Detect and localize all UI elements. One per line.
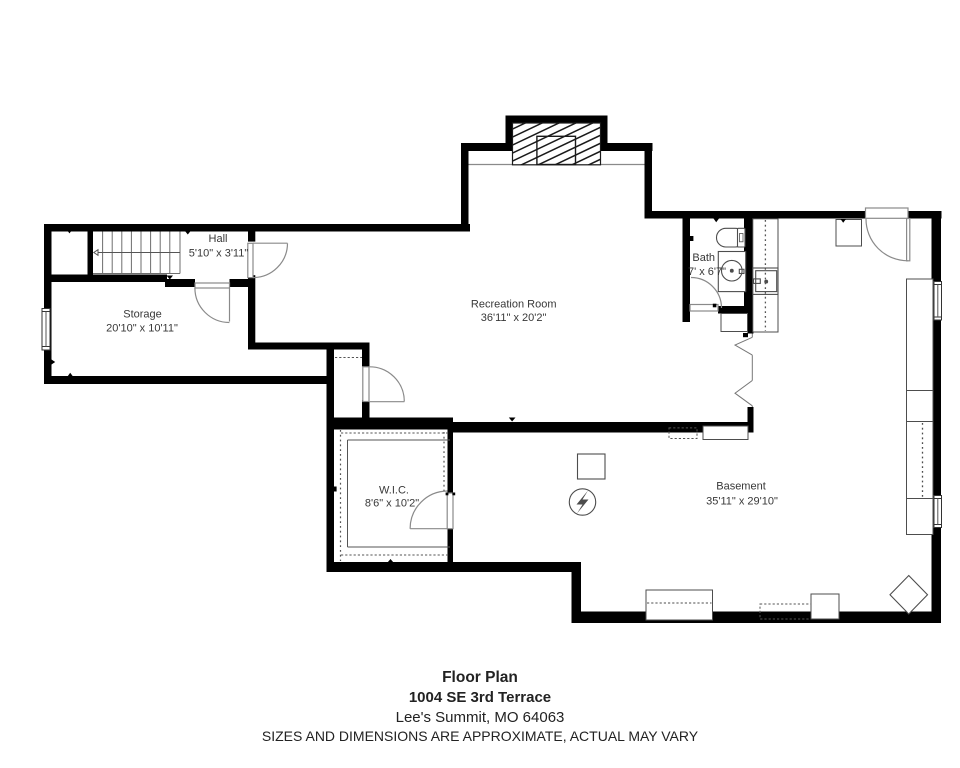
svg-text:36'11" x 20'2": 36'11" x 20'2" <box>481 312 547 324</box>
svg-text:Recreation Room: Recreation Room <box>471 299 557 311</box>
svg-text:7' x 6'7": 7' x 6'7" <box>688 266 726 278</box>
svg-text:Lee's Summit, MO 64063: Lee's Summit, MO 64063 <box>396 709 565 726</box>
svg-text:1004 SE 3rd Terrace: 1004 SE 3rd Terrace <box>409 689 551 706</box>
svg-text:Hall: Hall <box>209 233 228 245</box>
svg-text:Storage: Storage <box>123 309 162 321</box>
svg-text:SIZES AND DIMENSIONS ARE APPRO: SIZES AND DIMENSIONS ARE APPROXIMATE, AC… <box>262 728 699 744</box>
svg-text:Floor Plan: Floor Plan <box>442 669 518 686</box>
svg-text:Bath: Bath <box>692 252 715 264</box>
svg-text:Basement: Basement <box>716 481 766 493</box>
svg-text:5'10" x 3'11": 5'10" x 3'11" <box>189 248 249 260</box>
svg-text:20'10" x 10'11": 20'10" x 10'11" <box>106 323 178 335</box>
svg-text:W.I.C.: W.I.C. <box>379 485 409 497</box>
svg-text:35'11" x 29'10": 35'11" x 29'10" <box>706 496 778 508</box>
svg-text:8'6" x 10'2": 8'6" x 10'2" <box>365 498 419 510</box>
